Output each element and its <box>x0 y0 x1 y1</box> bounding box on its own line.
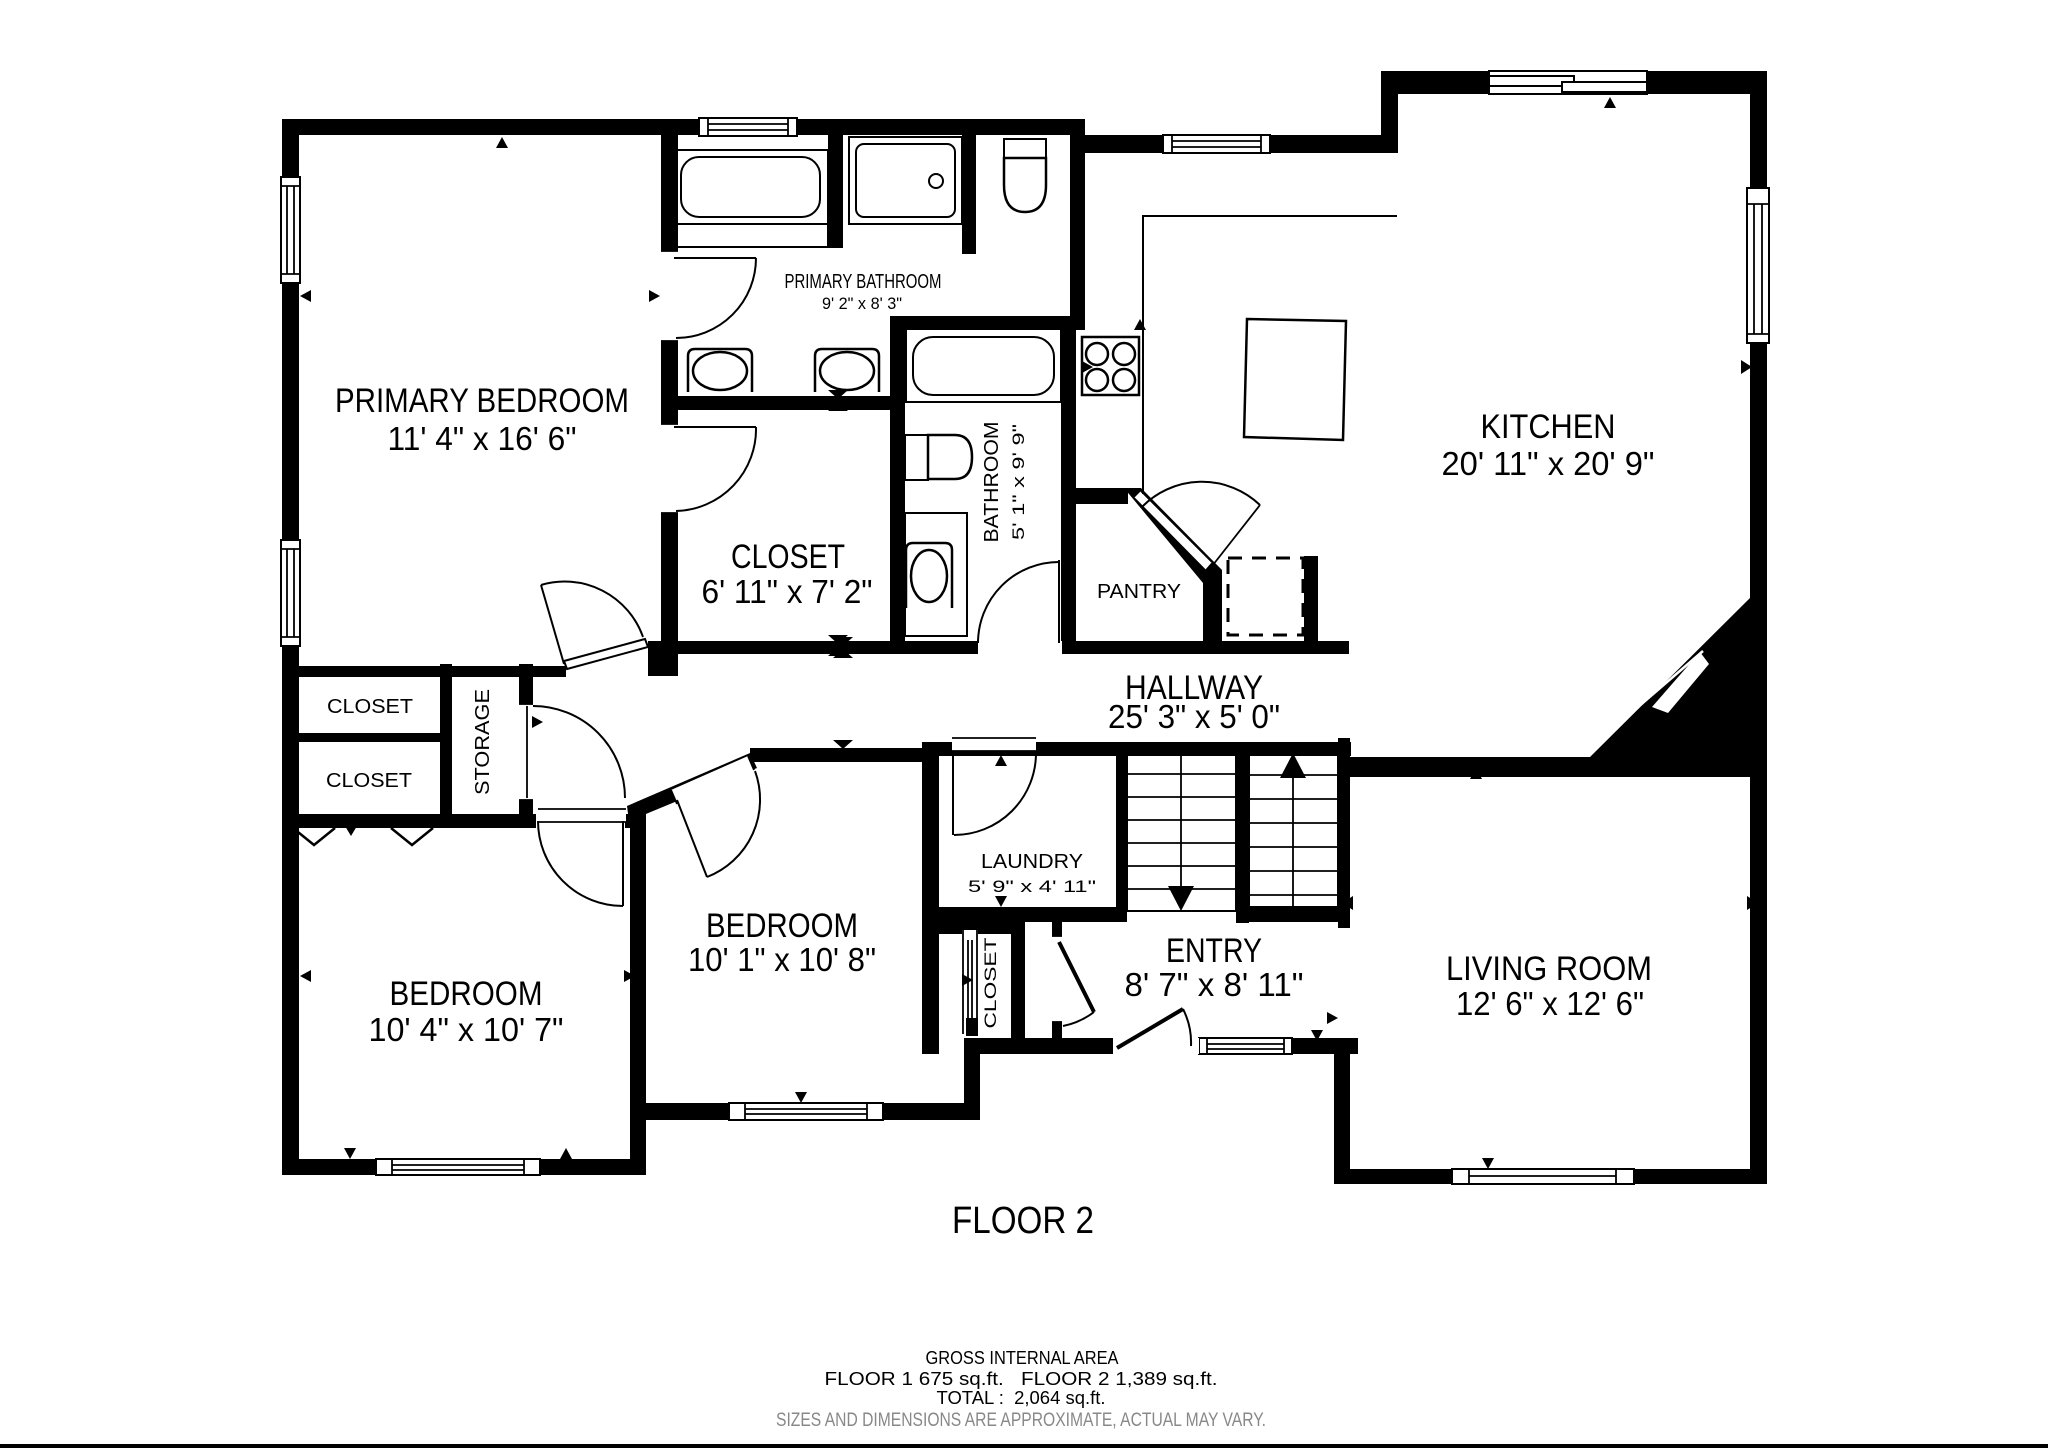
svg-text:5' 1" x 9' 9": 5' 1" x 9' 9" <box>1009 424 1028 540</box>
svg-text:11' 4" x 16' 6": 11' 4" x 16' 6" <box>388 420 577 457</box>
svg-text:9' 2" x 8' 3": 9' 2" x 8' 3" <box>822 294 902 313</box>
svg-text:25' 3" x 5' 0": 25' 3" x 5' 0" <box>1108 698 1280 735</box>
svg-text:ENTRY: ENTRY <box>1166 932 1262 970</box>
svg-text:CLOSET: CLOSET <box>731 538 845 576</box>
svg-text:20' 11" x 20' 9": 20' 11" x 20' 9" <box>1442 445 1655 482</box>
svg-text:10' 1" x 10' 8": 10' 1" x 10' 8" <box>688 941 876 978</box>
svg-text:10' 4" x 10' 7": 10' 4" x 10' 7" <box>369 1011 564 1048</box>
svg-text:BEDROOM: BEDROOM <box>390 975 543 1013</box>
svg-text:BATHROOM: BATHROOM <box>981 422 1003 543</box>
svg-text:PRIMARY BATHROOM: PRIMARY BATHROOM <box>785 271 942 293</box>
svg-text:LAUNDRY: LAUNDRY <box>981 851 1083 873</box>
svg-text:CLOSET: CLOSET <box>326 770 412 792</box>
svg-text:KITCHEN: KITCHEN <box>1481 408 1616 446</box>
svg-text:6' 11" x 7' 2": 6' 11" x 7' 2" <box>702 573 873 610</box>
svg-text:PRIMARY BEDROOM: PRIMARY BEDROOM <box>335 382 629 420</box>
svg-text:GROSS INTERNAL AREA: GROSS INTERNAL AREA <box>926 1348 1119 1368</box>
svg-text:FLOOR 2: FLOOR 2 <box>952 1200 1094 1242</box>
svg-text:12' 6" x 12' 6": 12' 6" x 12' 6" <box>1456 985 1644 1022</box>
svg-text:SIZES AND DIMENSIONS ARE APPRO: SIZES AND DIMENSIONS ARE APPROXIMATE, AC… <box>776 1410 1266 1431</box>
svg-text:PANTRY: PANTRY <box>1097 581 1181 603</box>
svg-text:8' 7" x 8' 11": 8' 7" x 8' 11" <box>1125 966 1304 1003</box>
svg-text:BEDROOM: BEDROOM <box>706 907 858 945</box>
svg-text:STORAGE: STORAGE <box>472 689 494 795</box>
svg-text:CLOSET: CLOSET <box>981 938 1000 1029</box>
svg-text:LIVING ROOM: LIVING ROOM <box>1446 950 1652 988</box>
svg-text:5' 9" x 4' 11": 5' 9" x 4' 11" <box>968 877 1096 896</box>
svg-text:TOTAL : 2,064 sq.ft.: TOTAL : 2,064 sq.ft. <box>937 1388 1106 1408</box>
svg-text:CLOSET: CLOSET <box>327 696 413 718</box>
svg-text:FLOOR 1 675 sq.ft. FLOOR 2 1: FLOOR 1 675 sq.ft. FLOOR 2 1,389 sq.ft. <box>825 1369 1218 1389</box>
